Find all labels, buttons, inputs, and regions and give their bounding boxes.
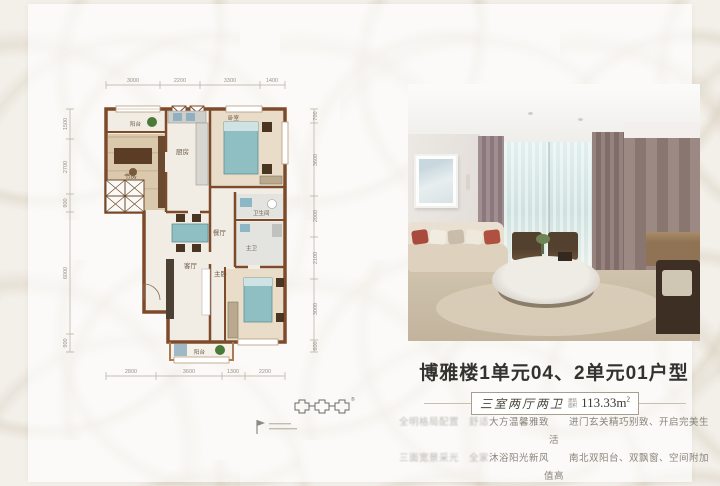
ceiling-light xyxy=(528,112,533,115)
curtain-right xyxy=(592,132,624,276)
sofa-pillow xyxy=(429,229,446,245)
dim-bottom-1: 2800 xyxy=(125,369,137,375)
area-label: 建筑 面积 xyxy=(568,398,577,409)
dim-right-6: 600 xyxy=(313,341,319,350)
sofa-pillow xyxy=(483,229,500,245)
selling-point-line1: 全明格局配置 舒适大方温馨雅致 进门玄关精巧别致、开启完美生活 xyxy=(394,414,714,450)
table-box xyxy=(558,252,572,261)
line2-text: 沐浴阳光新风 南北双阳台、双飘窗、空间附加值高 xyxy=(489,453,709,482)
sofa-pillow xyxy=(447,229,464,244)
dim-bottom-4: 2200 xyxy=(259,369,271,375)
north-compass-icon xyxy=(253,417,303,442)
dim-left-4: 6000 xyxy=(63,267,69,279)
dim-bottom-3: 1300 xyxy=(227,369,239,375)
dim-left-1: 1500 xyxy=(63,118,69,130)
wall-artwork xyxy=(414,154,458,208)
dim-top-4: 1400 xyxy=(266,78,278,84)
wall-lamp xyxy=(466,174,470,190)
dim-left-2: 2700 xyxy=(63,161,69,173)
selling-points: 全明格局配置 舒适大方温馨雅致 进门玄关精巧别致、开启完美生活 三面宽景采光 全… xyxy=(394,414,714,486)
area-badge: 三室两厅两卫 建筑 面积 113.33m2 xyxy=(471,392,639,415)
dim-right-1: 700 xyxy=(313,111,319,120)
sofa-pillow xyxy=(411,229,429,245)
line2-blurred-prefix: 三面宽景采光 全家 xyxy=(399,453,489,464)
dim-left-3: 900 xyxy=(63,198,69,207)
label-balcony-bottom: 阳台 xyxy=(194,348,206,356)
dim-left-5: 900 xyxy=(63,338,69,347)
label-kitchen: 厨房 xyxy=(176,147,189,156)
label-dining: 餐厅 xyxy=(213,228,227,237)
ceiling-light xyxy=(578,118,583,121)
dim-right-2: 3600 xyxy=(313,154,319,166)
rule-line-right xyxy=(639,403,686,404)
area-sup: 2 xyxy=(626,396,630,404)
label-balcony-top: 阳台 xyxy=(130,120,142,128)
dim-top-2: 2200 xyxy=(174,78,186,84)
coffee-table xyxy=(492,256,600,304)
area-badge-row: 三室两厅两卫 建筑 面积 113.33m2 xyxy=(424,392,686,414)
line1-blurred-prefix: 全明格局配置 舒适 xyxy=(399,417,489,428)
dim-right-3: 2000 xyxy=(313,210,319,222)
label-master-bath: 主卫 xyxy=(246,244,258,252)
registered-mark: ® xyxy=(351,396,355,403)
table-plant xyxy=(536,234,550,254)
area-label-line2: 面积 xyxy=(568,403,577,408)
dim-bottom-2: 3600 xyxy=(183,369,195,375)
dim-top-1: 3000 xyxy=(127,78,139,84)
label-master: 主卧 xyxy=(214,269,228,278)
sofa-pillow xyxy=(465,229,483,245)
selling-point-line2: 三面宽景采光 全家沐浴阳光新风 南北双阳台、双飘窗、空间附加值高 xyxy=(394,450,714,486)
dim-right-5: 3000 xyxy=(313,303,319,315)
line1-text: 大方温馨雅致 进门玄关精巧别致、开启完美生活 xyxy=(489,417,709,446)
stair-shaft xyxy=(106,180,144,212)
rule-line-left xyxy=(424,403,471,404)
label-study: 书房 xyxy=(124,171,137,180)
living-room-photo xyxy=(408,84,700,341)
dim-right-4: 2100 xyxy=(313,252,319,264)
poster-page: 3000 2200 3300 1400 2800 3600 1300 2200 … xyxy=(0,0,720,486)
unit-title: 博雅楼1单元04、2单元01户型 xyxy=(404,358,704,385)
floor-plan: 3000 2200 3300 1400 2800 3600 1300 2200 … xyxy=(48,52,358,397)
label-living: 客厅 xyxy=(184,261,198,270)
armchair xyxy=(656,260,700,334)
label-bedroom: 卧室 xyxy=(228,114,240,122)
rooms-count-text: 三室两厅两卫 xyxy=(480,395,564,412)
label-bath: 卫生间 xyxy=(253,209,270,217)
area-value: 113.33m2 xyxy=(581,395,630,411)
area-number: 113.33m xyxy=(581,395,626,410)
dim-top-3: 3300 xyxy=(224,78,236,84)
